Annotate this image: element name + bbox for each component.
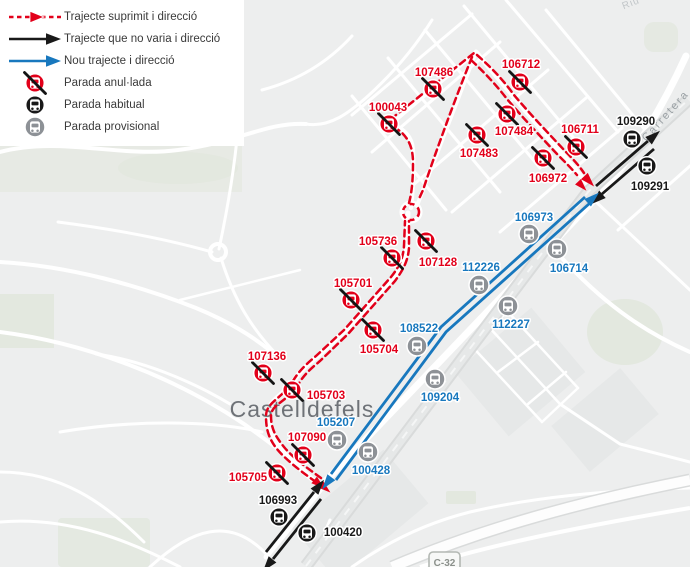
stop-label-100043: 100043 bbox=[369, 102, 407, 114]
legend-label: Nou trajecte i direcció bbox=[64, 55, 175, 67]
stop-label-112226: 112226 bbox=[462, 262, 500, 274]
stop-label-109291: 109291 bbox=[631, 181, 670, 193]
stop-label-105703: 105703 bbox=[307, 390, 345, 402]
regular-stop-icon bbox=[6, 93, 64, 117]
stop-109291[interactable] bbox=[638, 157, 657, 176]
stop-label-107128: 107128 bbox=[419, 257, 458, 269]
stop-label-109290: 109290 bbox=[617, 116, 655, 128]
stop-106714[interactable] bbox=[547, 239, 567, 259]
stop-label-106973: 106973 bbox=[515, 212, 553, 224]
svg-text:C-32: C-32 bbox=[434, 558, 456, 567]
stop-label-107486: 107486 bbox=[415, 67, 453, 79]
transit-map-page: Castelldefels Carretera Riu C-32 1074861… bbox=[0, 0, 690, 567]
stop-label-109204: 109204 bbox=[421, 392, 460, 404]
legend-label: Parada provisional bbox=[64, 121, 159, 133]
stop-label-108522: 108522 bbox=[400, 323, 438, 335]
stop-109290[interactable] bbox=[623, 130, 642, 149]
stop-label-106711: 106711 bbox=[561, 124, 599, 136]
legend-label: Parada anul·lada bbox=[64, 77, 152, 89]
legend-label: Trajecte suprimit i direcció bbox=[64, 11, 197, 23]
stop-label-105207: 105207 bbox=[317, 417, 355, 429]
stop-label-106714: 106714 bbox=[550, 263, 589, 275]
stop-label-112227: 112227 bbox=[492, 319, 530, 331]
stop-label-100428: 100428 bbox=[352, 465, 391, 477]
stop-label-105705: 105705 bbox=[229, 472, 268, 484]
stop-label-106712: 106712 bbox=[502, 59, 540, 71]
stop-label-105701: 105701 bbox=[334, 278, 373, 290]
legend-item-stop-regular: Parada habitual bbox=[6, 94, 244, 115]
stop-108522[interactable] bbox=[407, 336, 427, 356]
stop-label-105736: 105736 bbox=[359, 236, 397, 248]
stop-label-106993: 106993 bbox=[259, 495, 297, 507]
cancelled-stop-icon bbox=[6, 71, 64, 95]
unchanged-route-arrow-icon bbox=[6, 30, 64, 48]
legend: Trajecte suprimit i direcció Trajecte qu… bbox=[0, 0, 244, 146]
stop-100428[interactable] bbox=[358, 442, 378, 462]
legend-label: Trajecte que no varia i direcció bbox=[64, 33, 220, 45]
stop-100420[interactable] bbox=[298, 524, 317, 543]
stop-106993[interactable] bbox=[270, 508, 289, 527]
legend-item-route-new: Nou trajecte i direcció bbox=[6, 50, 244, 71]
stop-label-107136: 107136 bbox=[248, 351, 286, 363]
suppressed-route-arrow-icon bbox=[6, 8, 64, 26]
stop-label-105704: 105704 bbox=[360, 344, 399, 356]
stop-label-107483: 107483 bbox=[460, 148, 498, 160]
stop-112227[interactable] bbox=[498, 296, 518, 316]
stop-label-106972: 106972 bbox=[529, 173, 567, 185]
legend-item-stop-provisional: Parada provisional bbox=[6, 116, 244, 137]
stop-label-107484: 107484 bbox=[495, 126, 534, 138]
stop-label-100420: 100420 bbox=[324, 527, 362, 539]
legend-label: Parada habitual bbox=[64, 99, 145, 111]
legend-item-stop-cancelled: Parada anul·lada bbox=[6, 72, 244, 93]
stop-109204[interactable] bbox=[425, 369, 445, 389]
stop-106973[interactable] bbox=[519, 224, 539, 244]
road-shield-c32: C-32 bbox=[429, 552, 460, 567]
new-route-arrow-icon bbox=[6, 52, 64, 70]
stop-105207[interactable] bbox=[327, 430, 347, 450]
legend-item-route-suppressed: Trajecte suprimit i direcció bbox=[6, 6, 244, 27]
provisional-stop-icon bbox=[6, 115, 64, 139]
stop-112226[interactable] bbox=[469, 275, 489, 295]
stop-label-107090: 107090 bbox=[288, 432, 326, 444]
legend-item-route-unchanged: Trajecte que no varia i direcció bbox=[6, 28, 244, 49]
